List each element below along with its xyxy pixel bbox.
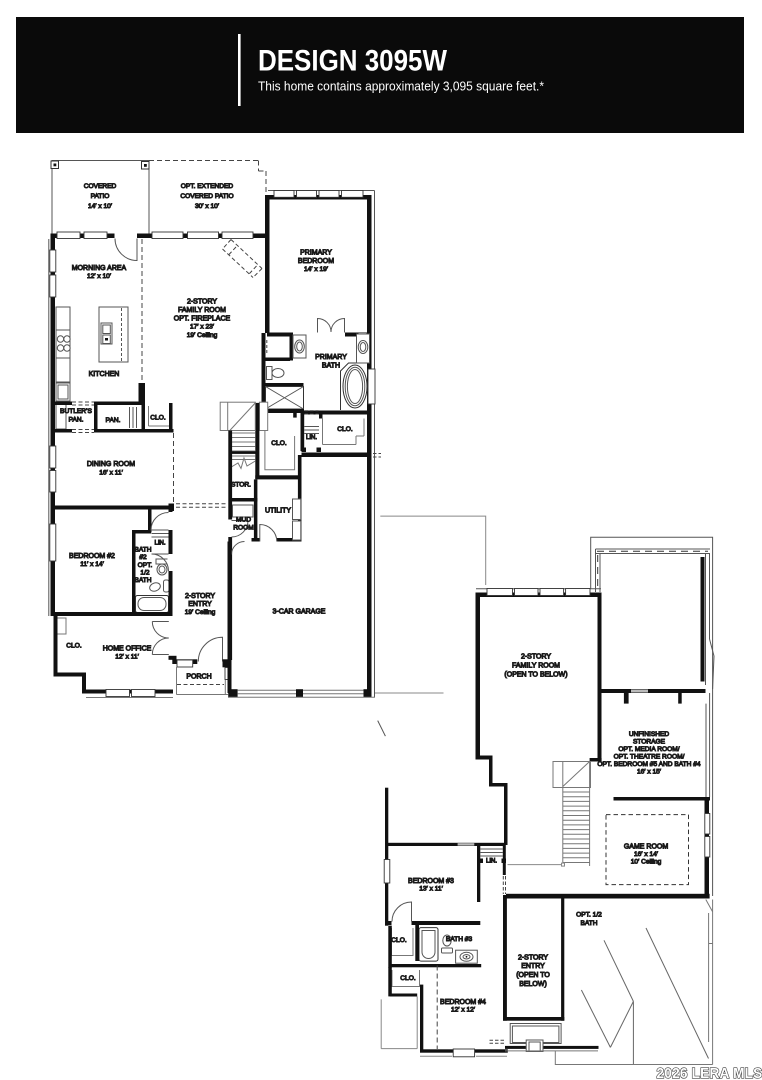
svg-text:BEDROOM #2: BEDROOM #2 — [69, 553, 115, 560]
svg-text:UTILITY: UTILITY — [265, 508, 291, 515]
svg-text:OPT. FIREPLACE: OPT. FIREPLACE — [174, 316, 231, 323]
svg-text:2-STORY: 2-STORY — [187, 299, 217, 306]
svg-text:CLO.: CLO. — [66, 643, 82, 650]
svg-text:1/2: 1/2 — [140, 570, 149, 577]
svg-text:2-STORY: 2-STORY — [518, 955, 548, 962]
svg-text:2-STORY: 2-STORY — [185, 593, 215, 600]
svg-text:KITCHEN: KITCHEN — [89, 371, 120, 378]
svg-text:CLO.: CLO. — [150, 415, 166, 422]
svg-text:PATIO: PATIO — [91, 193, 110, 200]
svg-text:12′ x 11′: 12′ x 11′ — [115, 654, 139, 661]
svg-text:16′ x 14′: 16′ x 14′ — [634, 851, 659, 858]
svg-text:ENTRY: ENTRY — [521, 963, 545, 970]
svg-text:DINING ROOM: DINING ROOM — [87, 461, 135, 468]
svg-text:30′ x 10′: 30′ x 10′ — [195, 203, 220, 210]
svg-text:#2: #2 — [139, 554, 147, 561]
svg-text:13′ x 11′: 13′ x 11′ — [419, 886, 443, 893]
svg-text:BATH: BATH — [134, 547, 151, 554]
svg-text:OPT.: OPT. — [138, 562, 153, 569]
svg-text:This home contains approximate: This home contains approximately 3,095 s… — [258, 79, 544, 94]
svg-text:ROOM: ROOM — [233, 525, 254, 532]
svg-text:16′ x 11′: 16′ x 11′ — [99, 470, 123, 477]
svg-text:19′ Ceiling: 19′ Ceiling — [187, 332, 218, 339]
svg-text:LIN.: LIN. — [486, 859, 497, 865]
svg-text:COVERED: COVERED — [84, 183, 117, 190]
svg-text:BATH: BATH — [322, 363, 340, 370]
svg-text:UNFINISHED: UNFINISHED — [629, 731, 670, 738]
svg-text:16′ x 15′: 16′ x 15′ — [637, 769, 662, 776]
svg-text:MORNING AREA: MORNING AREA — [72, 265, 127, 272]
svg-text:PAN.: PAN. — [106, 417, 121, 424]
svg-text:LIN.: LIN. — [154, 541, 165, 547]
svg-text:LIN.: LIN. — [306, 435, 317, 441]
svg-text:CLO.: CLO. — [400, 975, 416, 982]
svg-text:MUD: MUD — [236, 517, 251, 524]
svg-text:CLO.: CLO. — [337, 426, 353, 433]
svg-text:(OPEN TO BELOW): (OPEN TO BELOW) — [504, 672, 567, 679]
svg-text:PORCH: PORCH — [186, 674, 211, 681]
svg-text:14′ x 19′: 14′ x 19′ — [304, 266, 329, 273]
svg-text:FAMILY ROOM: FAMILY ROOM — [512, 663, 560, 670]
svg-text:FAMILY ROOM: FAMILY ROOM — [178, 307, 226, 314]
svg-text:STOR.: STOR. — [231, 482, 251, 489]
svg-text:COVERED PATIO: COVERED PATIO — [180, 193, 233, 200]
svg-text:ENTRY: ENTRY — [188, 601, 212, 608]
svg-text:19′ Ceiling: 19′ Ceiling — [185, 609, 216, 616]
svg-text:12′ x 12′: 12′ x 12′ — [451, 1007, 476, 1014]
svg-text:OPT. MEDIA ROOM/: OPT. MEDIA ROOM/ — [618, 746, 679, 753]
svg-text:10′ Ceiling: 10′ Ceiling — [631, 859, 662, 866]
svg-text:BATH #3: BATH #3 — [446, 936, 473, 943]
svg-text:3-CAR GARAGE: 3-CAR GARAGE — [273, 609, 326, 616]
svg-text:OPT. 1/2: OPT. 1/2 — [576, 912, 602, 919]
svg-text:(OPEN TO: (OPEN TO — [516, 972, 550, 979]
svg-text:STORAGE: STORAGE — [633, 739, 666, 746]
svg-text:DESIGN 3095W: DESIGN 3095W — [258, 45, 447, 78]
svg-text:BATH: BATH — [580, 920, 597, 927]
svg-text:OPT. THEATRE ROOM/: OPT. THEATRE ROOM/ — [614, 754, 685, 761]
svg-text:BEDROOM #4: BEDROOM #4 — [440, 999, 486, 1006]
svg-text:CLO.: CLO. — [271, 440, 287, 447]
svg-text:12′ x 10′: 12′ x 10′ — [87, 273, 112, 280]
svg-text:OPT. EXTENDED: OPT. EXTENDED — [181, 183, 234, 190]
svg-text:PRIMARY: PRIMARY — [315, 354, 347, 361]
svg-text:PAN.: PAN. — [69, 417, 84, 424]
svg-text:14′ x 10′: 14′ x 10′ — [88, 203, 113, 210]
svg-text:CLO.: CLO. — [391, 937, 407, 944]
svg-text:17′ x 23′: 17′ x 23′ — [190, 324, 215, 331]
svg-text:OPT. BEDROOM #5 AND BATH #4: OPT. BEDROOM #5 AND BATH #4 — [597, 761, 701, 768]
svg-text:GAME ROOM: GAME ROOM — [624, 844, 669, 851]
svg-text:BEDROOM: BEDROOM — [298, 258, 334, 265]
svg-text:BUTLER’S: BUTLER’S — [60, 408, 92, 415]
svg-text:HOME OFFICE: HOME OFFICE — [103, 646, 152, 653]
svg-text:2026 LERA MLS: 2026 LERA MLS — [657, 1066, 762, 1080]
svg-text:PRIMARY: PRIMARY — [300, 250, 332, 257]
svg-text:11′ x 14′: 11′ x 14′ — [80, 561, 104, 568]
svg-text:BEDROOM #3: BEDROOM #3 — [408, 878, 454, 885]
svg-text:2-STORY: 2-STORY — [521, 654, 551, 661]
svg-text:BELOW): BELOW) — [519, 981, 547, 988]
svg-text:BATH: BATH — [134, 577, 151, 584]
